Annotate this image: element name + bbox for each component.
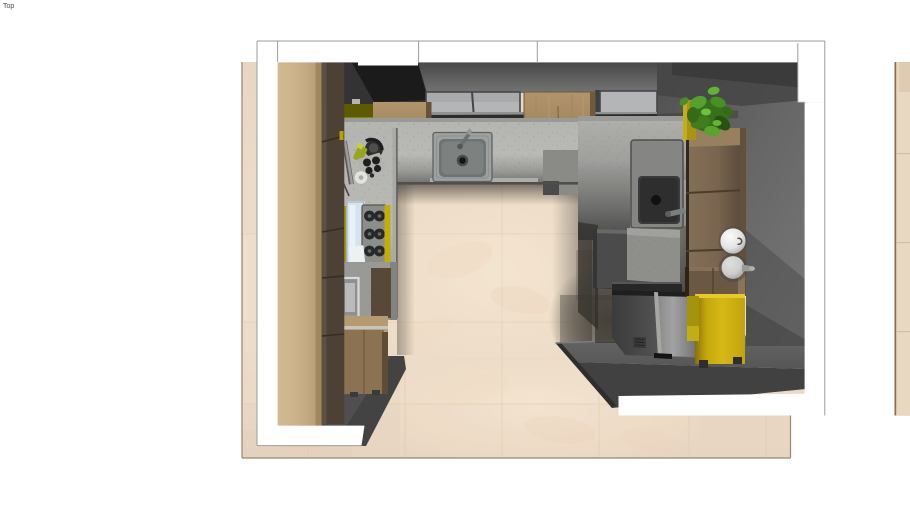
svg-text:Top: Top bbox=[3, 3, 14, 10]
